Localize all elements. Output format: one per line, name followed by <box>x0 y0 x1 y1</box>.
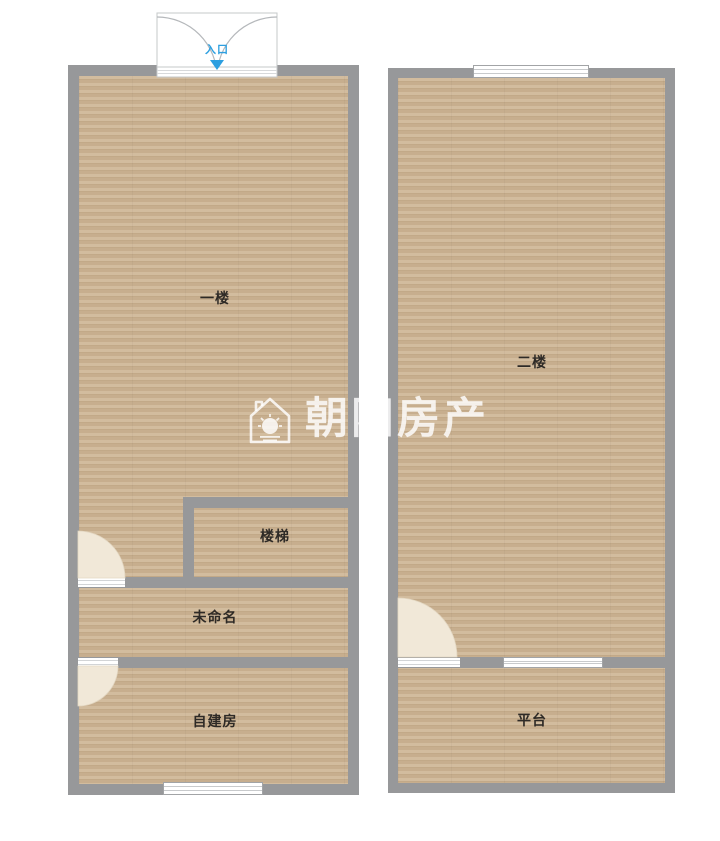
house-sun-logo-icon <box>243 390 297 448</box>
door-sill-self-built-room <box>78 658 118 667</box>
entrance-label: 入口 <box>205 41 229 57</box>
entrance-arrow-icon <box>210 60 224 70</box>
room-label-self-built: 自建房 <box>193 711 238 731</box>
window-first-floor-bottom <box>163 782 263 795</box>
room-label-second-floor: 二楼 <box>517 352 547 372</box>
watermark: 朝阳房产 <box>243 390 489 448</box>
window-second-floor-top <box>473 65 589 78</box>
room-label-stairs: 楼梯 <box>260 526 290 546</box>
watermark-text: 朝阳房产 <box>305 398 489 441</box>
room-label-unnamed: 未命名 <box>193 607 238 627</box>
door-sill-unnamed-room <box>78 578 125 587</box>
room-label-platform: 平台 <box>517 710 547 730</box>
window-platform-wall <box>503 657 603 668</box>
stair-room-top-wall <box>183 497 359 508</box>
door-sill-platform <box>398 658 460 667</box>
floor-plan-image: 入口 一楼 楼梯 未命名 自建房 二楼 平台 <box>0 0 720 841</box>
room-label-first-floor: 一楼 <box>200 288 230 308</box>
stair-room-left-wall <box>183 497 194 588</box>
